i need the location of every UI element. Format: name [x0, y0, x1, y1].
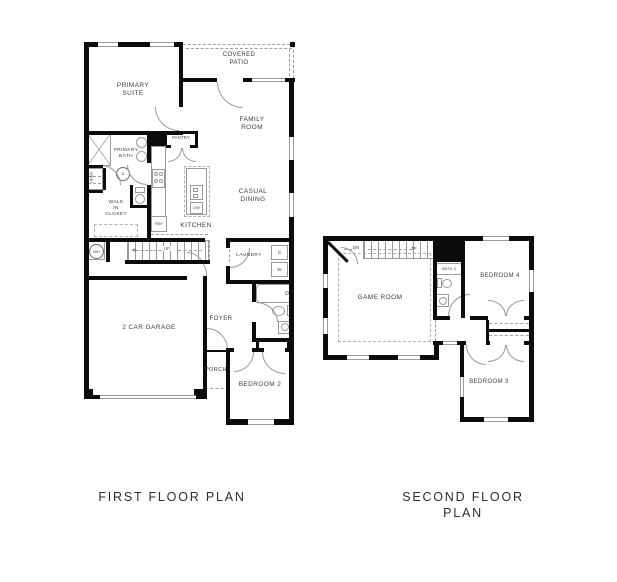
label-garage: 2 CAR GARAGE: [104, 324, 194, 332]
toilet-tank-primary: [135, 187, 145, 193]
bathtub-3: BATH 3: [435, 263, 463, 275]
dryer-box: D: [271, 245, 288, 260]
water-heater: WH: [89, 244, 104, 259]
label-bedroom-3: BEDROOM 3: [458, 379, 520, 387]
label-game-room: GAME ROOM: [345, 294, 415, 302]
opening-dash-left: [209, 240, 210, 262]
label-linen: LINEN: [90, 164, 95, 190]
label-foyer: FOYER: [199, 316, 243, 324]
label-primary-suite: PRIMARY SUITE: [103, 82, 163, 99]
closet-shelf-bed3: [489, 335, 534, 336]
label-bedroom-4: BEDROOM 4: [470, 273, 530, 281]
dishwasher: DW: [190, 202, 203, 214]
stairs-up-label: UP: [163, 246, 171, 251]
label-walk-in-closet: WALK IN CLOSET: [96, 200, 136, 219]
closet-shelves: [94, 224, 138, 237]
closet-shelf-bed4: [489, 323, 534, 324]
label-porch: PORCH: [196, 367, 236, 374]
washer-box: W: [271, 262, 288, 277]
stairs-down-arrow: [412, 246, 417, 250]
first-floor-title: FIRST FLOOR PLAN: [92, 489, 252, 505]
label-pantry: PANTRY: [164, 135, 198, 140]
floorplan-sheet: WH UP REF DW D W 1: [0, 0, 617, 582]
label-laundry: LAUNDRY: [228, 253, 270, 259]
hall-opening-dash: [435, 320, 436, 341]
second-floor-title: SECOND FLOOR PLAN: [383, 489, 543, 522]
toilet-bowl-bath3: [442, 279, 452, 288]
label-casual-dining: CASUAL DINING: [223, 188, 283, 205]
label-bedroom-2: BEDROOM 2: [226, 381, 294, 389]
garage-door: [100, 395, 196, 399]
label-family-room: FAMILY ROOM: [222, 116, 282, 133]
label-kitchen: KITCHEN: [171, 222, 221, 230]
refrigerator: REF: [151, 216, 167, 232]
label-primary-bath: PRIMARY BATH: [106, 148, 146, 160]
label-covered-patio: COVERED PATIO: [209, 52, 269, 68]
toilet-bowl-primary: [135, 194, 145, 204]
kitchen-edge-dash: [151, 234, 208, 235]
bath-sink-1: [136, 137, 147, 148]
stairs-down-label: DN: [352, 245, 360, 250]
